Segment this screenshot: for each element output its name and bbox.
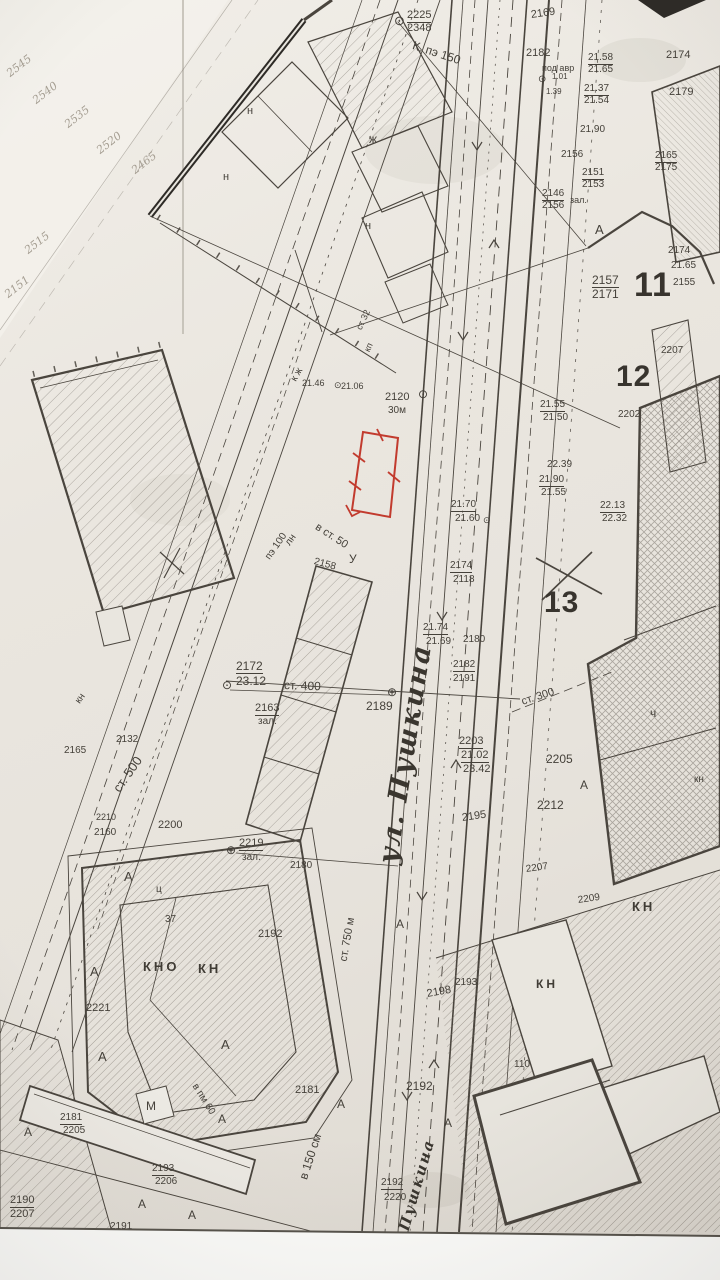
map-label: 2156 bbox=[542, 201, 564, 211]
map-label: У bbox=[349, 553, 357, 565]
map-label: ст. 400 bbox=[284, 679, 321, 692]
map-label: КН bbox=[198, 962, 221, 975]
map-label: в пм 60 bbox=[190, 1082, 217, 1116]
map-label: 2169 bbox=[530, 7, 556, 21]
map-label: 2155 bbox=[673, 278, 695, 288]
map-label: 2210 bbox=[96, 813, 116, 822]
map-label: 23.42 bbox=[463, 764, 491, 775]
map-label: 2206 bbox=[155, 1177, 177, 1187]
map-label: А bbox=[138, 1198, 146, 1210]
map-label: ст. 750 м bbox=[339, 917, 358, 963]
map-label: 2207 bbox=[525, 862, 548, 875]
map-label: 2465 bbox=[130, 150, 159, 176]
map-label: 21.70 bbox=[451, 500, 476, 512]
map-label: 21.65 bbox=[671, 261, 696, 271]
map-label: 2182 bbox=[453, 660, 475, 672]
map-label: 2165 bbox=[64, 746, 86, 756]
map-label: 2191 bbox=[110, 1222, 132, 1232]
map-label: ст 32 bbox=[355, 308, 372, 331]
map-label: 21.74 bbox=[423, 623, 448, 635]
map-label: А bbox=[221, 1038, 230, 1051]
map-label: А bbox=[90, 965, 99, 978]
map-label: 2195 bbox=[461, 810, 487, 824]
map-label: 2180 bbox=[290, 861, 312, 871]
map-label: 30м bbox=[388, 406, 406, 416]
map-label: 2174 bbox=[668, 246, 690, 256]
map-label: 2192 bbox=[406, 1080, 433, 1092]
map-label: 2202 bbox=[618, 410, 640, 420]
map-label: 22.13 bbox=[600, 501, 625, 513]
map-label: зал. bbox=[570, 196, 587, 205]
map-label: 2151 bbox=[3, 274, 32, 300]
block-number: 12 bbox=[616, 362, 651, 392]
map-label: в 150 см bbox=[297, 1132, 323, 1181]
map-label: зал. bbox=[258, 717, 277, 727]
map-label: 2221 bbox=[86, 1003, 110, 1014]
map-label: ч bbox=[650, 707, 656, 719]
map-label: КН bbox=[632, 900, 655, 913]
map-label: 2193 bbox=[152, 1164, 174, 1176]
map-label: 2198 bbox=[426, 985, 452, 1000]
street-name: ул. Пушкина bbox=[375, 642, 436, 866]
map-label: 21.54 bbox=[584, 96, 609, 106]
map-label: ст. 500 bbox=[111, 754, 145, 794]
map-label: 1.39 bbox=[546, 88, 562, 96]
map-label: 21.60 bbox=[455, 514, 480, 524]
map-label: 21.46 bbox=[302, 379, 325, 388]
map-label: 2180 bbox=[463, 635, 485, 645]
block-number: 11 bbox=[634, 268, 672, 302]
map-photo: ⊙22252348К. пэ 15021692182под авр⊙1.011.… bbox=[0, 0, 720, 1280]
block-number: 13 bbox=[544, 588, 579, 618]
map-label: ц bbox=[156, 885, 162, 895]
map-label: 21.02 bbox=[461, 750, 489, 763]
map-label: 2181 bbox=[295, 1085, 319, 1096]
map-label: 21.55 bbox=[541, 488, 566, 498]
map-label: А bbox=[444, 1117, 452, 1129]
map-label: 2181 bbox=[60, 1113, 82, 1125]
map-label: 2209 bbox=[577, 893, 600, 906]
map-label: ⊕ bbox=[387, 686, 397, 698]
map-label: 21.50 bbox=[543, 413, 568, 423]
map-label: 110 bbox=[514, 1060, 530, 1070]
map-label: 2132 bbox=[116, 735, 138, 745]
map-label: 21.65 bbox=[588, 65, 613, 75]
map-label: М bbox=[146, 1100, 156, 1112]
map-label: 2189 bbox=[366, 700, 393, 712]
map-label: 2520 bbox=[95, 130, 124, 156]
map-label: 2158 bbox=[313, 557, 337, 572]
map-label: лн bbox=[284, 533, 299, 548]
map-label: ⊙ bbox=[483, 516, 491, 525]
map-label: кн bbox=[74, 692, 88, 706]
map-label: н bbox=[223, 172, 229, 183]
map-label: 2545 bbox=[5, 53, 34, 79]
map-label: ⊙ bbox=[418, 388, 428, 400]
map-label: кн bbox=[694, 775, 704, 785]
map-label: зал. bbox=[242, 853, 261, 863]
map-label: ⊕ bbox=[226, 844, 236, 856]
map-label: А bbox=[218, 1113, 226, 1125]
map-label: 21.06 bbox=[341, 382, 364, 391]
map-label: 2171 bbox=[592, 288, 619, 300]
map-label: н bbox=[365, 221, 371, 232]
map-label: кп bbox=[363, 341, 375, 353]
map-label: 2179 bbox=[669, 87, 693, 98]
map-label: А bbox=[98, 1050, 107, 1063]
map-label: ⊙ bbox=[222, 679, 232, 691]
map-label: ж bbox=[369, 133, 377, 145]
map-label: 2174 bbox=[450, 561, 472, 573]
map-label: 37 bbox=[165, 915, 176, 925]
map-label: 2175 bbox=[655, 163, 677, 173]
map-label: А bbox=[188, 1209, 196, 1221]
map-label: 2153 bbox=[582, 180, 604, 190]
map-label: н bbox=[247, 106, 253, 117]
map-label: 21.90 bbox=[539, 475, 564, 487]
map-label: 2203 bbox=[459, 736, 483, 749]
map-label: 2219 bbox=[239, 838, 263, 851]
map-label: 2200 bbox=[158, 820, 182, 831]
map-label: 22.39 bbox=[547, 460, 572, 470]
map-label: 23.12 bbox=[236, 675, 266, 687]
map-label: 2120 bbox=[385, 392, 409, 403]
map-label: 1.01 bbox=[552, 73, 568, 81]
map-label: КН bbox=[536, 978, 558, 990]
map-label: А bbox=[396, 918, 404, 930]
map-label: ⊙ bbox=[538, 75, 546, 85]
map-label: 2160 bbox=[94, 828, 116, 838]
map-label: 2118 bbox=[453, 575, 475, 585]
map-label: 2156 bbox=[561, 150, 583, 160]
map-label: 2207 bbox=[10, 1209, 34, 1220]
map-label: 2205 bbox=[546, 753, 573, 765]
map-label: 2193 bbox=[455, 978, 477, 988]
map-label: 2157 bbox=[592, 274, 619, 288]
map-label: А bbox=[595, 223, 604, 236]
map-label: А bbox=[580, 779, 588, 791]
map-label: КНО bbox=[143, 960, 179, 973]
map-label: 2540 bbox=[31, 80, 60, 106]
map-label: 2163 bbox=[255, 703, 279, 716]
map-label: А bbox=[337, 1098, 345, 1110]
map-label: в ст. 50 bbox=[313, 522, 350, 551]
map-label: 2207 bbox=[661, 346, 683, 356]
map-label: 21.90 bbox=[580, 125, 605, 135]
map-label: К. пэ 150 bbox=[411, 39, 462, 66]
map-label: А bbox=[24, 1126, 32, 1138]
map-label: 2191 bbox=[453, 674, 475, 684]
map-label: 2535 bbox=[63, 104, 92, 130]
map-label: 2172 bbox=[236, 660, 263, 674]
map-label: 2515 bbox=[23, 230, 52, 256]
map-label: 2190 bbox=[10, 1195, 34, 1208]
map-label: 22.32 bbox=[602, 514, 627, 524]
map-label: 2212 bbox=[537, 799, 564, 811]
map-label: ⊙ bbox=[394, 14, 405, 27]
map-label: 2192 bbox=[381, 1178, 403, 1190]
map-label: 2182 bbox=[526, 48, 550, 59]
map-label: ст. 300 bbox=[520, 687, 556, 708]
map-label: 2192 bbox=[258, 929, 282, 940]
map-label: 2174 bbox=[666, 50, 690, 61]
map-label: 21.55 bbox=[540, 400, 565, 412]
map-label: 2205 bbox=[63, 1126, 85, 1136]
map-label: А bbox=[124, 870, 133, 883]
map-label: 2348 bbox=[407, 23, 431, 34]
map-labels-layer: ⊙22252348К. пэ 15021692182под авр⊙1.011.… bbox=[0, 0, 720, 1280]
